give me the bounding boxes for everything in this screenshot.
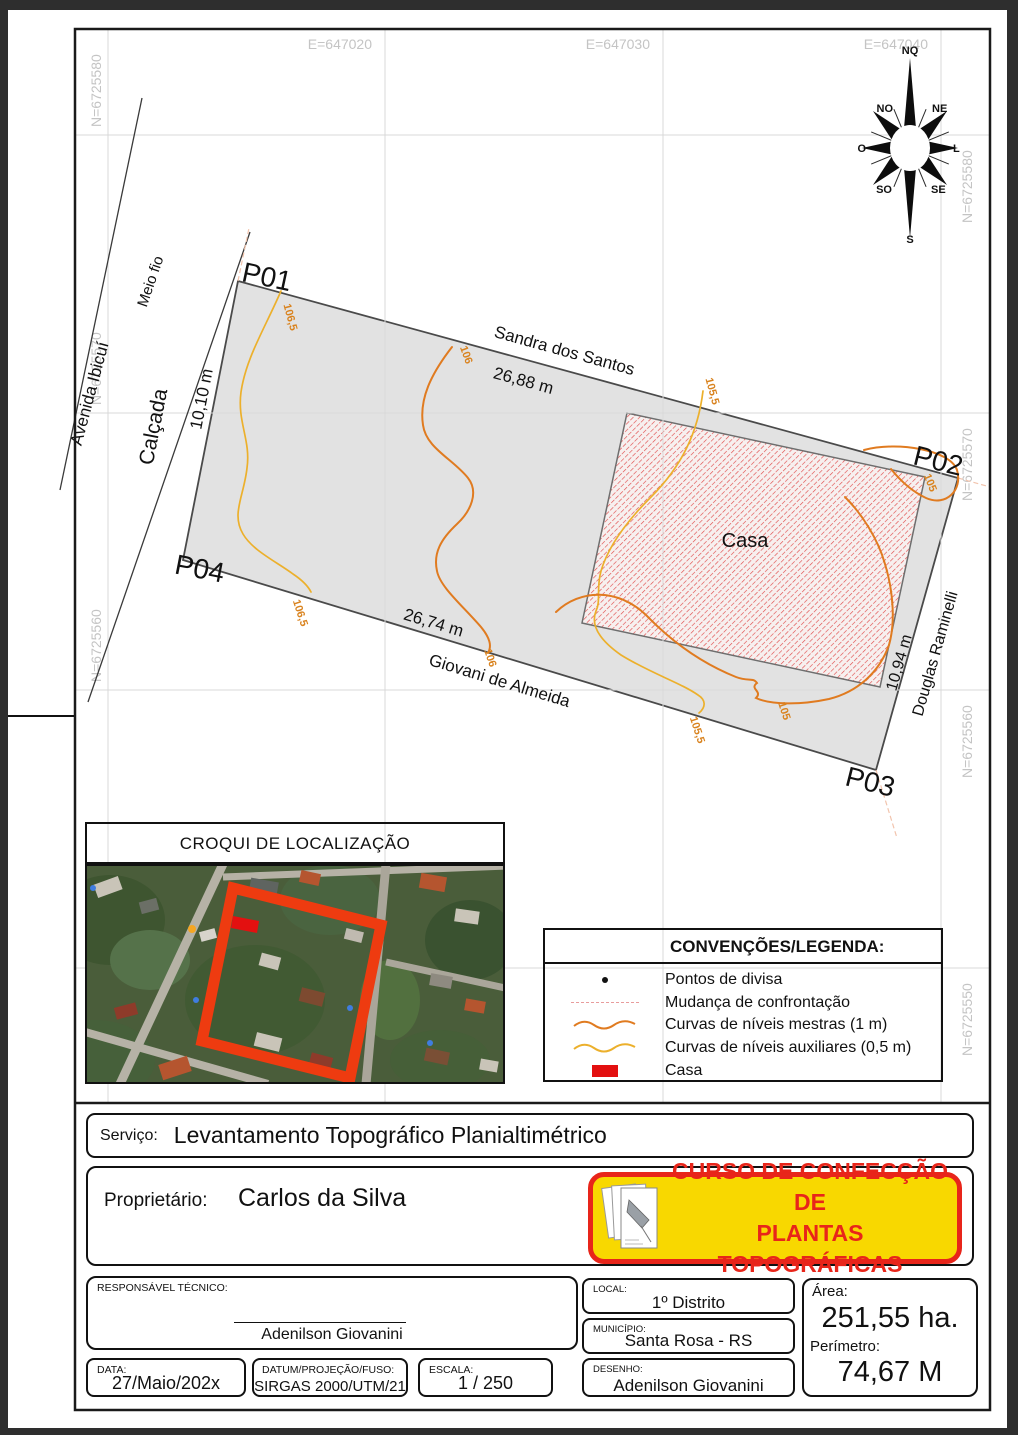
- area-box: Área: 251,55 ha. Perímetro: 74,67 M: [802, 1278, 978, 1397]
- northing-label-right: N=6725560: [959, 705, 975, 778]
- legend-item-label: Curvas de níveis auxiliares (0,5 m): [665, 1039, 911, 1057]
- croqui-photo-frame: [85, 864, 505, 1084]
- legend-item-divisa: Pontos de divisa: [545, 969, 941, 992]
- compass-ne-label: NE: [932, 103, 947, 115]
- easting-label: E=647040: [864, 36, 928, 52]
- proprietario-value: Carlos da Silva: [238, 1184, 406, 1213]
- casa-swatch-icon: [592, 1065, 618, 1077]
- area-label: Área:: [812, 1283, 848, 1300]
- legend-title: CONVENÇÕES/LEGENDA:: [545, 930, 941, 964]
- municipio-value: Santa Rosa - RS: [584, 1331, 793, 1351]
- master-contour-icon: [545, 1018, 665, 1032]
- northing-label-left: N=6725580: [88, 54, 104, 127]
- aux-contour-icon: [545, 1041, 665, 1055]
- escala-value: 1 / 250: [420, 1373, 551, 1394]
- contour-label: 105,5: [703, 376, 722, 406]
- legend-item-label: Pontos de divisa: [665, 971, 782, 989]
- easting-label: E=647030: [586, 36, 650, 52]
- compass-e-label: L: [953, 143, 960, 155]
- contour-label: 105,5: [687, 715, 707, 745]
- datum-label: DATUM/PROJEÇÃO/FUSO:: [262, 1364, 394, 1376]
- desenho-value: Adenilson Giovanini: [584, 1376, 793, 1396]
- northing-label-right: N=6725550: [959, 983, 975, 1056]
- croqui-title: CROQUI DE LOCALIZAÇÃO: [85, 822, 505, 864]
- legend-item-mestras: Curvas de níveis mestras (1 m): [545, 1014, 941, 1037]
- topographic-plan-sheet: { "map": { "easting_labels": ["E=647020"…: [0, 0, 1018, 1435]
- area-value: 251,55 ha.: [804, 1302, 976, 1335]
- course-banner: CURSO DE CONFECÇÃO DE PLANTAS TOPOGRÁFIC…: [588, 1172, 962, 1264]
- perimetro-label: Perímetro:: [810, 1338, 880, 1355]
- casa-label: Casa: [722, 530, 770, 552]
- servico-value: Levantamento Topográfico Planialtimétric…: [174, 1122, 607, 1149]
- servico-box: Serviço: Levantamento Topográfico Plania…: [86, 1113, 974, 1158]
- point-label-p03: P03: [842, 761, 898, 803]
- datum-box: DATUM/PROJEÇÃO/FUSO: SIRGAS 2000/UTM/21: [252, 1358, 408, 1397]
- data-value: 27/Maio/202x: [88, 1373, 244, 1394]
- compass-rose-icon: NQ NE L SE S SO O NO: [857, 45, 960, 246]
- local-value: 1º Distrito: [584, 1293, 793, 1313]
- compass-sw-label: SO: [876, 184, 892, 196]
- legend-box: CONVENÇÕES/LEGENDA: Pontos de divisa Mud…: [543, 928, 943, 1082]
- compass-s-label: S: [906, 234, 913, 246]
- perimetro-value: 74,67 M: [804, 1356, 976, 1389]
- signature-line: [234, 1322, 406, 1323]
- legend-item-label: Casa: [665, 1062, 702, 1080]
- legend-item-auxiliares: Curvas de níveis auxiliares (0,5 m): [545, 1037, 941, 1060]
- compass-nw-label: NO: [877, 103, 894, 115]
- compass-w-label: O: [857, 143, 866, 155]
- course-banner-text: CURSO DE CONFECÇÃO DE PLANTAS TOPOGRÁFIC…: [663, 1156, 957, 1280]
- easting-label: E=647020: [308, 36, 372, 52]
- street-label-meio-fio: Meio fio: [134, 254, 167, 309]
- divisa-point-icon: [602, 977, 608, 983]
- legend-item-label: Curvas de níveis mestras (1 m): [665, 1016, 887, 1034]
- responsavel-label: RESPONSÁVEL TÉCNICO:: [97, 1282, 228, 1294]
- proprietario-label: Proprietário:: [104, 1190, 208, 1212]
- data-box: DATA: 27/Maio/202x: [86, 1358, 246, 1397]
- responsavel-value: Adenilson Giovanini: [88, 1326, 576, 1344]
- banner-line1: CURSO DE CONFECÇÃO DE: [663, 1156, 957, 1218]
- desenho-label: DESENHO:: [593, 1364, 643, 1375]
- northing-label-left: N=6725560: [88, 609, 104, 682]
- plans-stack-icon: [601, 1180, 663, 1256]
- escala-box: ESCALA: 1 / 250: [418, 1358, 553, 1397]
- local-box: LOCAL: 1º Distrito: [582, 1278, 795, 1314]
- compass-n-label: NQ: [902, 45, 919, 57]
- legend-item-confrontacao: Mudança de confrontação: [545, 992, 941, 1015]
- legend-item-label: Mudança de confrontação: [665, 994, 850, 1012]
- northing-label-right: N=6725580: [959, 150, 975, 223]
- banner-line2: PLANTAS TOPOGRÁFICAS: [663, 1218, 957, 1280]
- dashed-line-icon: [571, 1002, 639, 1003]
- street-label-avenida: Avenida Ibicuí: [67, 339, 113, 447]
- contour-label: 106,5: [290, 598, 310, 628]
- legend-item-casa: Casa: [545, 1059, 941, 1082]
- desenho-box: DESENHO: Adenilson Giovanini: [582, 1358, 795, 1397]
- datum-value: SIRGAS 2000/UTM/21: [254, 1378, 406, 1395]
- municipio-box: MUNICÍPIO: Santa Rosa - RS: [582, 1318, 795, 1354]
- servico-label: Serviço:: [100, 1127, 158, 1145]
- compass-se-label: SE: [931, 184, 946, 196]
- street-label-calcada: Calçada: [135, 386, 172, 466]
- responsavel-box: RESPONSÁVEL TÉCNICO: Adenilson Giovanini: [86, 1276, 578, 1350]
